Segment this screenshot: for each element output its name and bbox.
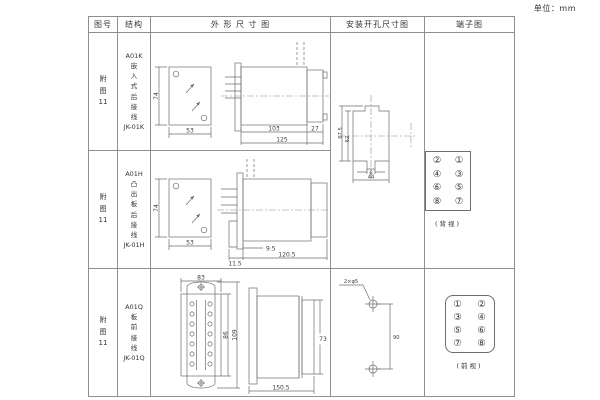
dim-label-height: 74	[153, 92, 160, 100]
terminal-diagram-rear: ② ① ④ ③ ⑥ ⑤ ⑧ ⑦ (背视)	[425, 151, 471, 228]
install-cell-rear-wiring: 67.5 62 6 44	[331, 33, 425, 269]
terminal-4: ④	[477, 313, 486, 323]
dim-label-spacing: 90	[393, 335, 400, 341]
figure-no-label: 附 图 11	[99, 315, 108, 351]
terminal-1: ①	[455, 156, 464, 166]
terminal-diagram-front: ① ② ③ ④ ⑤ ⑥ ⑦ ⑧ (前视)	[445, 295, 495, 370]
col-header-structure: 结构	[118, 17, 151, 33]
terminal-5: ⑤	[455, 183, 464, 193]
terminal-3: ③	[453, 313, 462, 323]
dim-label-cutout-width: 44	[368, 175, 375, 181]
hole-drawing: 2×φ5 90	[339, 279, 400, 377]
dim-label-inner-height: 86	[223, 331, 230, 339]
dim-label-flange: 11.5	[228, 261, 242, 268]
figure-no-label: 附 图 11	[99, 74, 108, 110]
figure-no-jk01k: 附 图 11	[89, 33, 118, 151]
hole-spec-label: 2×φ5	[344, 279, 358, 285]
col-header-terminal: 端子图	[425, 17, 514, 33]
front-view: 83 86 109	[181, 274, 240, 388]
outline-drawing-jk01q: 83 86 109 73 150.5	[151, 270, 330, 396]
terminal-6: ⑥	[433, 183, 442, 193]
dim-label-outer-height: 109	[232, 329, 239, 341]
col-header-figure-no: 图号	[89, 17, 118, 33]
install-drawing-front: 2×φ5 90	[331, 270, 424, 396]
terminal-box-front: ① ② ③ ④ ⑤ ⑥ ⑦ ⑧	[445, 295, 495, 353]
terminal-2: ②	[477, 300, 486, 310]
terminal-1: ①	[453, 300, 462, 310]
side-view: 103 27 125	[221, 42, 329, 145]
terminal-box-rear: ② ① ④ ③ ⑥ ⑤ ⑧ ⑦	[425, 151, 471, 211]
outline-drawing-jk01h: 74 53 9.5 11.5 120.5	[151, 151, 330, 268]
dim-label-width: 53	[186, 240, 194, 247]
install-drawing-rear: 67.5 62 6 44	[331, 33, 424, 268]
structure-jk01k: A01K 嵌 入 式 后 接 线 JK-01K	[118, 33, 151, 151]
structure-jk01q: A01Q 板 前 接 线 JK-01Q	[118, 269, 151, 396]
front-view: 74 53	[153, 179, 211, 250]
side-view: 73 150.5	[249, 288, 327, 394]
dim-label-width: 53	[186, 128, 194, 135]
structure-label: A01H 凸 出 板 后 接 线 JK-01H	[123, 169, 144, 250]
install-cell-front-wiring: 2×φ5 90	[331, 269, 425, 396]
terminal-caption-rear: (背视)	[435, 218, 461, 228]
cutout-shape: 67.5 62 6 44	[338, 95, 417, 183]
front-view: 74 53	[153, 67, 211, 138]
terminal-8: ⑧	[433, 197, 442, 207]
dimension-table: 图号 结构 外 形 尺 寸 图 安装开孔尺寸图 端子图 附 图 11 A01K …	[88, 16, 515, 397]
dim-label-height: 74	[153, 204, 160, 212]
dim-label-depth: 150.5	[272, 384, 289, 391]
dim-label-inner-height: 62	[345, 136, 351, 143]
terminal-cell-front: ① ② ③ ④ ⑤ ⑥ ⑦ ⑧ (前视)	[425, 269, 514, 396]
dim-label-width: 83	[197, 274, 205, 281]
terminal-2: ②	[433, 156, 442, 166]
terminal-6: ⑥	[477, 326, 486, 336]
outline-drawing-jk01k: 74 53 103 27 125	[151, 33, 330, 150]
dim-label-body: 103	[268, 126, 280, 133]
terminal-7: ⑦	[455, 197, 464, 207]
dim-label-total: 120.5	[278, 252, 295, 259]
dim-label-side-height: 73	[319, 336, 327, 343]
terminal-caption-front: (前视)	[456, 360, 482, 370]
terminal-5: ⑤	[453, 326, 462, 336]
structure-label: A01K 嵌 入 式 后 接 线 JK-01K	[124, 51, 144, 132]
col-header-install: 安装开孔尺寸图	[331, 17, 425, 33]
side-view: 9.5 11.5 120.5	[217, 159, 329, 268]
dim-label-pin: 9.5	[266, 246, 276, 253]
dim-label-outer-height: 67.5	[338, 127, 344, 139]
figure-no-jk01q: 附 图 11	[89, 269, 118, 396]
figure-no-label: 附 图 11	[99, 192, 108, 228]
dim-label-total: 125	[276, 137, 288, 144]
outline-cell-jk01h: 74 53 9.5 11.5 120.5	[151, 151, 331, 269]
outline-cell-jk01k: 74 53 103 27 125	[151, 33, 331, 151]
col-header-outline: 外 形 尺 寸 图	[151, 17, 331, 33]
structure-label: A01Q 板 前 接 线 JK-01Q	[123, 302, 144, 362]
unit-label: 单位：mm	[534, 3, 576, 14]
dim-label-cap: 27	[311, 126, 319, 133]
terminal-7: ⑦	[453, 339, 462, 349]
outline-cell-jk01q: 83 86 109 73 150.5	[151, 269, 331, 396]
terminal-4: ④	[433, 170, 442, 180]
terminal-8: ⑧	[477, 339, 486, 349]
terminal-3: ③	[455, 170, 464, 180]
figure-no-jk01h: 附 图 11	[89, 151, 118, 269]
terminal-cell-rear: ② ① ④ ③ ⑥ ⑤ ⑧ ⑦ (背视)	[425, 33, 514, 269]
structure-jk01h: A01H 凸 出 板 后 接 线 JK-01H	[118, 151, 151, 269]
datasheet-page: 单位：mm 图号 结构 外 形 尺 寸 图 安装开孔尺寸图 端子图 附 图 11…	[0, 0, 600, 400]
